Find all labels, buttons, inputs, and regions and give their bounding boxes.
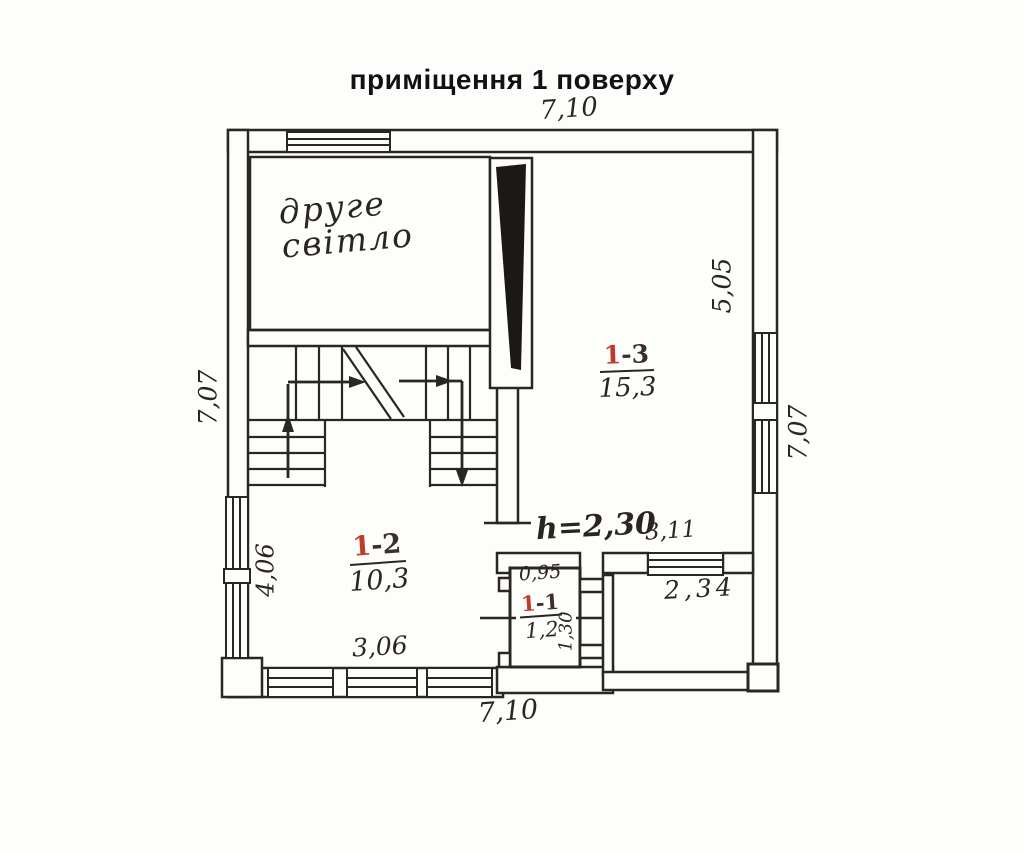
- height-note-label: h=2,30: [535, 509, 656, 546]
- room-number-rest: -3: [621, 339, 650, 369]
- window-south: [648, 553, 723, 575]
- dim-left-label: 7,07: [186, 350, 230, 445]
- dim-234-label: 2,34: [663, 574, 736, 603]
- central-wall: [497, 386, 518, 523]
- staircase: [248, 346, 497, 487]
- bottom-wall-mid: [497, 667, 613, 693]
- pier-left-bottom: [499, 653, 510, 667]
- porch-bottom-wall: [603, 672, 750, 690]
- room-1-2-label: 1-2 10,3: [346, 528, 411, 598]
- corner-block: [222, 658, 262, 697]
- dim-306-label: 3,06: [351, 633, 408, 661]
- dim-406-label: 4,06: [246, 525, 286, 615]
- arrow-right-icon: [436, 375, 453, 387]
- pier-right-top: [580, 579, 603, 592]
- arrow-up-icon: [282, 414, 294, 432]
- wall-under-void-room: [248, 330, 497, 346]
- dim-505-label: 5,05: [700, 240, 744, 330]
- second-light-note: друге світло: [277, 184, 415, 263]
- dim-095-label: 0,95: [518, 563, 562, 585]
- room-1-2-number: 1-2: [347, 528, 406, 566]
- window-bottom-2: [347, 668, 417, 697]
- room-number-red: 1: [603, 340, 621, 370]
- porch-post: [748, 664, 778, 691]
- room-1-3-number: 1-3: [599, 339, 653, 373]
- dim-311-label: 3,11: [644, 518, 697, 545]
- south-wall-c: [723, 553, 753, 573]
- window-left-2: [226, 583, 248, 658]
- window-right-2: [755, 420, 777, 493]
- room-1-2-area: 10,3: [348, 563, 410, 598]
- room-number-rest: -2: [370, 528, 402, 561]
- window-bottom-3: [427, 668, 492, 697]
- window-right-1: [755, 333, 777, 403]
- pier-right-bottom: [580, 645, 603, 658]
- dim-top-label: 7,10: [539, 94, 599, 124]
- window-bottom-1: [268, 668, 333, 697]
- window-left-1: [226, 497, 248, 569]
- pier-left-top: [499, 578, 510, 591]
- window-top: [287, 132, 390, 152]
- dim-130-label: 1,30: [552, 602, 580, 660]
- dim-right-label: 7,07: [778, 388, 818, 476]
- dim-bottom-label: 7,10: [477, 696, 539, 728]
- porch-left-wall: [603, 575, 613, 675]
- right-mullion: [753, 403, 777, 420]
- stair-direction-arrows: [282, 375, 468, 487]
- south-wall-b: [603, 553, 648, 573]
- room-1-3-label: 1-3 15,3: [597, 339, 657, 404]
- chimney: [490, 158, 532, 388]
- room-1-3-area: 15,3: [598, 372, 657, 404]
- floor-plan-scan: приміщення 1 поверху: [0, 0, 1024, 854]
